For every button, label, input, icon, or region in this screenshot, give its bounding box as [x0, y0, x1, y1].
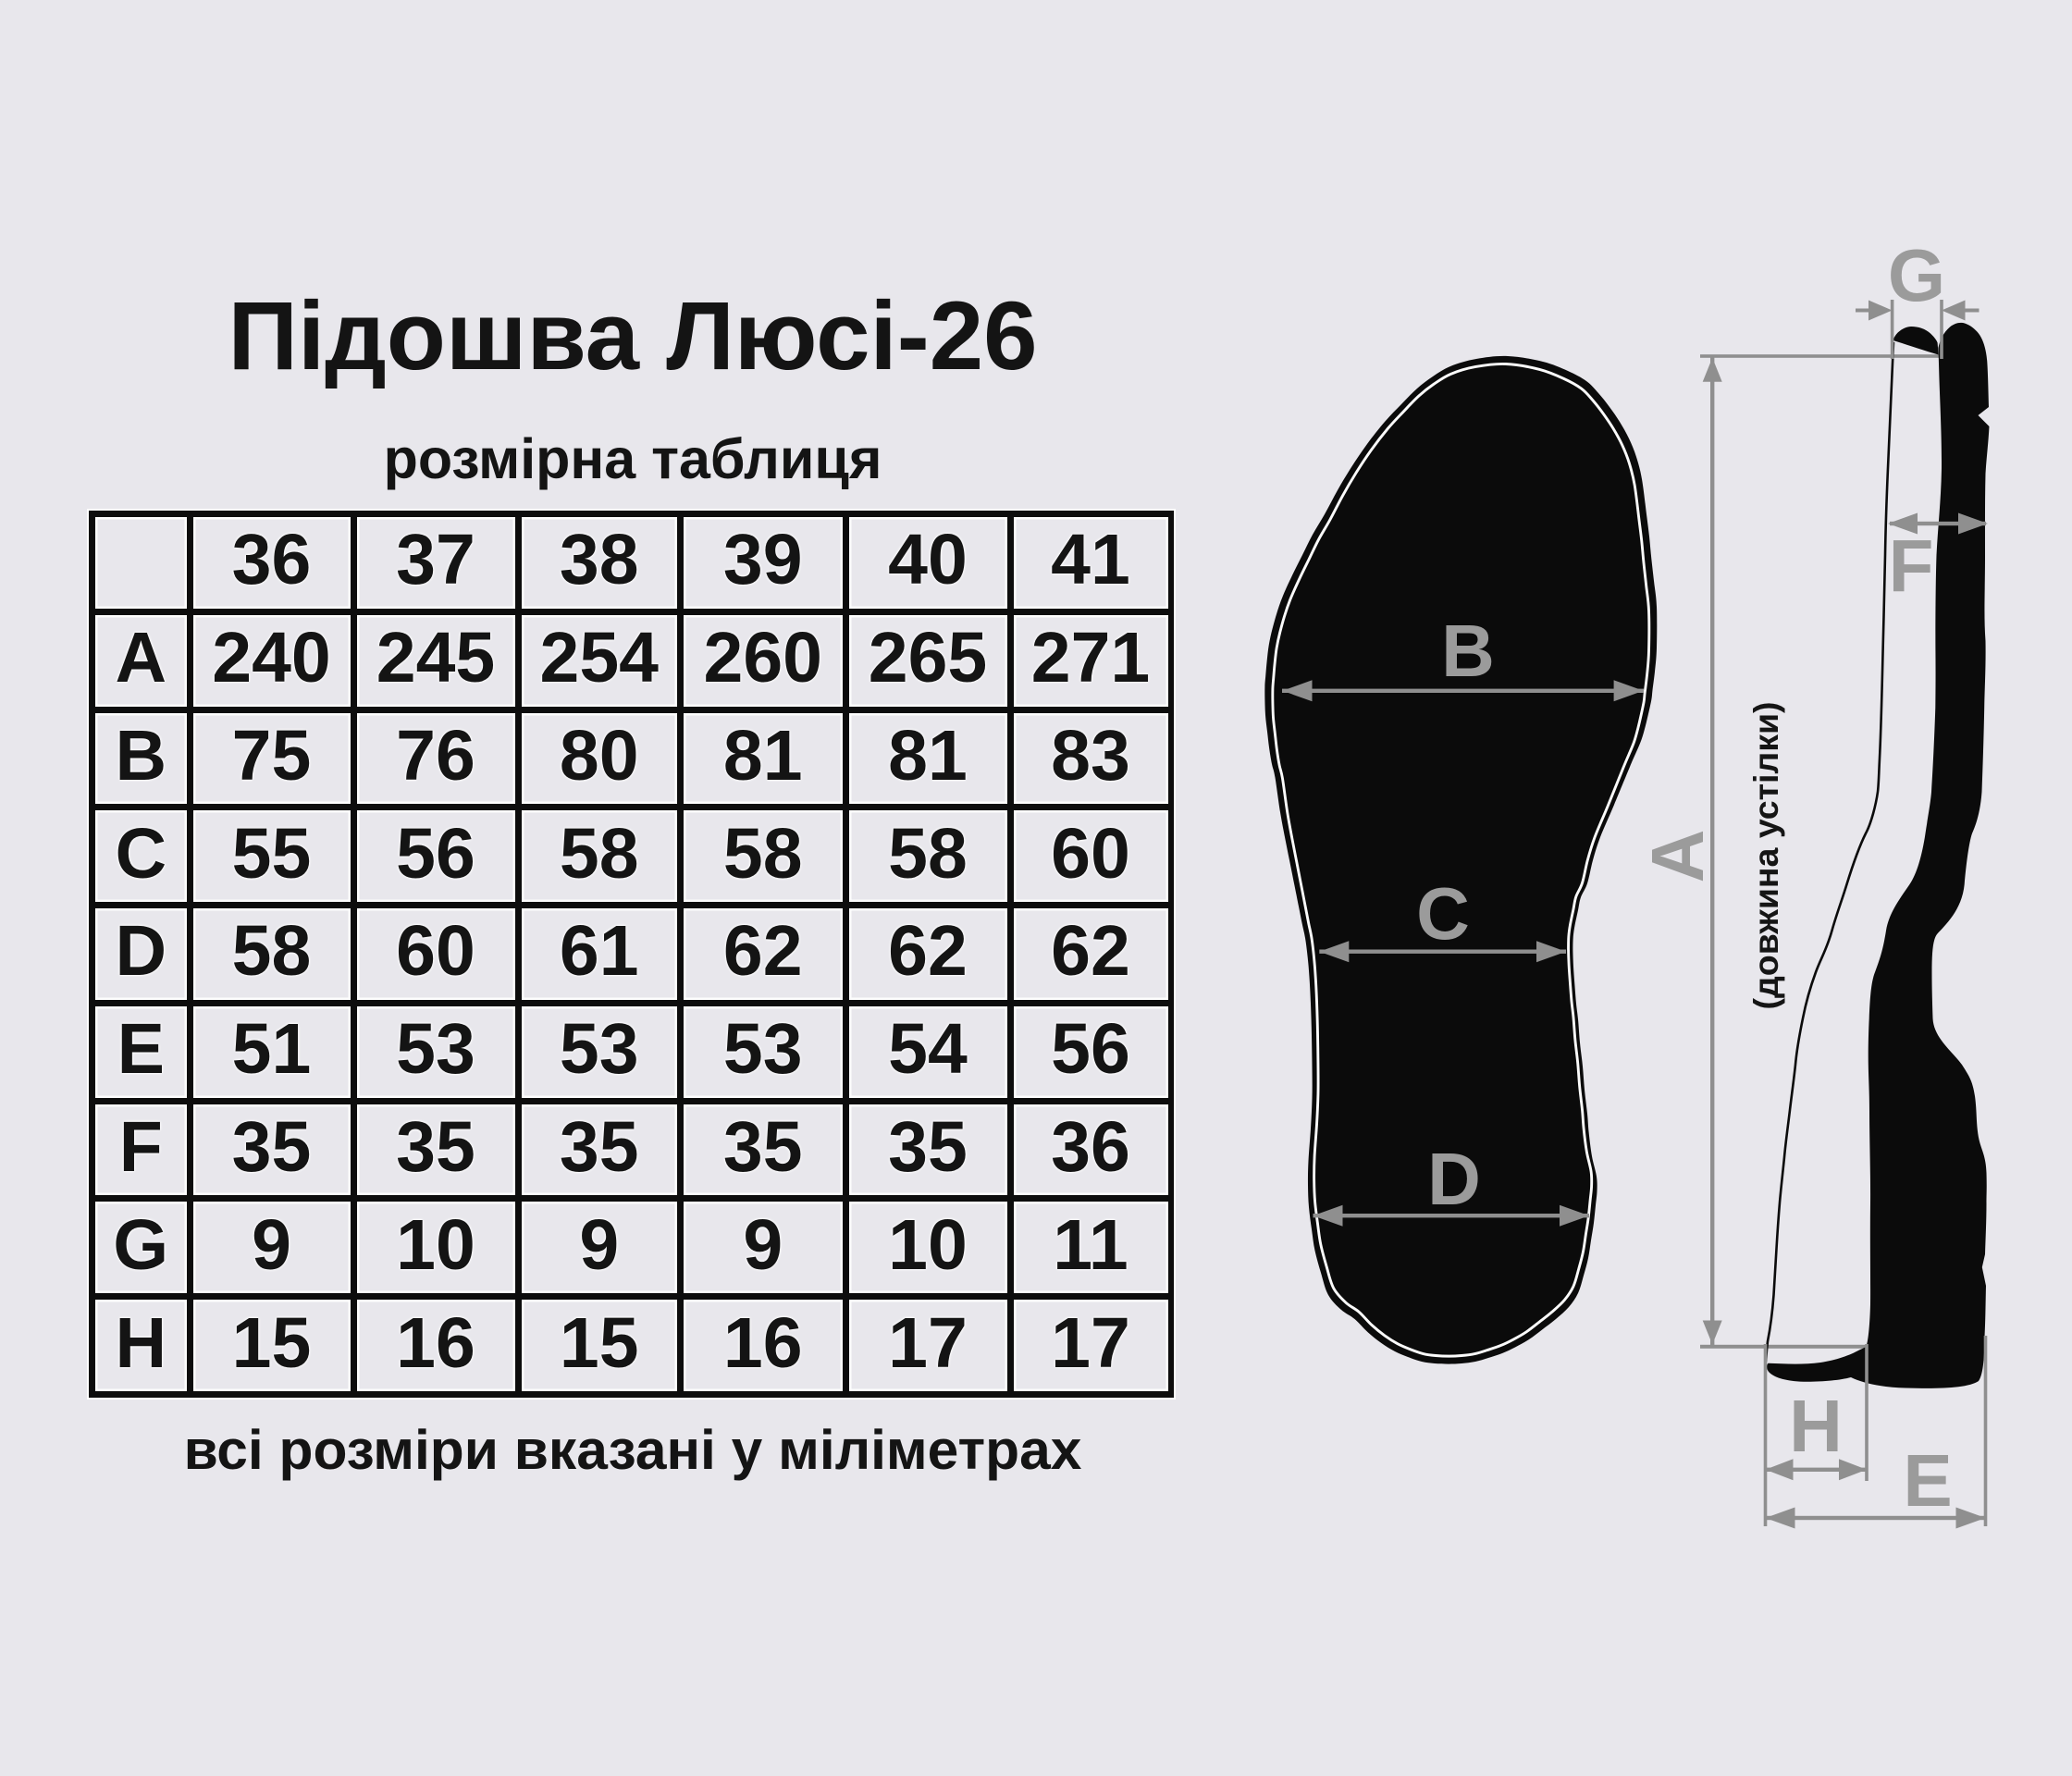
svg-text:E: E [1903, 1439, 1952, 1522]
svg-text:C: C [1416, 872, 1470, 955]
svg-text:D: D [1427, 1138, 1481, 1220]
svg-text:G: G [1888, 234, 1945, 316]
svg-text:H: H [1789, 1385, 1843, 1467]
svg-text:A: A [1636, 830, 1719, 883]
svg-text:B: B [1441, 610, 1495, 692]
svg-text:(довжина устілки): (довжина устілки) [1746, 701, 1785, 1009]
svg-text:F: F [1889, 524, 1934, 607]
